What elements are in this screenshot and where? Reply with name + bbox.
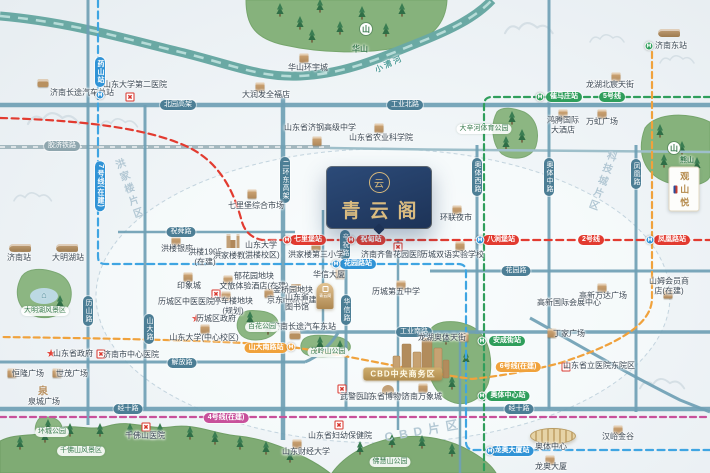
poi-parking-block: 停车楼地块 (规划) [213, 296, 253, 315]
building-icon-mixc [419, 384, 428, 393]
building-icon-qilibao-market [248, 190, 257, 199]
poi-aoti-center: 奥体中心 [535, 442, 567, 452]
poi-sdu-honglou-campus: 山东大学 (洪楼校区) [242, 240, 279, 259]
station-shanda-south-pill: 山大南路站 [245, 343, 288, 353]
poi-licheng-bilingual-school: 历城双语实验学校 [420, 250, 484, 260]
hospital-cross-icon-sdu2 [126, 93, 135, 102]
station-cuimazhuang-icon: M [536, 93, 545, 102]
road-shanda: 山大路 [144, 314, 154, 344]
poi-longao-building: 龙奥大厦 [535, 462, 567, 472]
park-qianfoshan-scenic: 千佛山风景区 [57, 446, 105, 456]
station-anchengjie-pill: 安成街站 [489, 336, 525, 346]
station-zhudian-icon: M [347, 236, 356, 245]
station-anchengjie-icon: M [478, 337, 487, 346]
poi-provincial-government: 山东省政府 [53, 349, 93, 359]
road-lishan: 历山路 [83, 296, 93, 326]
project-name: 青云阁 [332, 196, 425, 223]
poi-huaxin-building: 华信大厦 [313, 270, 345, 280]
station-aoti-center-pill: 奥体中心站 [487, 391, 530, 401]
brand-seal-icon [673, 185, 677, 193]
project-building: 青云阁 [317, 283, 334, 309]
park-huancheng: 环城公园 [35, 427, 69, 437]
poi-jigang-high-school: 山东省济钢高级中学 [284, 123, 356, 133]
bus-east-icon [290, 331, 301, 339]
building-icon-huanyu [300, 54, 309, 63]
poi-jinan-east-station: 济南东站 [655, 41, 687, 51]
project-emblem-glyph: 云 [374, 175, 384, 190]
road-jingshi-west: 经十路 [114, 404, 143, 414]
station-huayuanlu-pill: 花园路站 [340, 259, 376, 269]
poi-provincial-hospital-east: 山东省立医院东院区 [563, 361, 635, 371]
line5-pill: 5号线 [599, 92, 625, 102]
road-aoti-west: 奥体西路 [472, 158, 482, 196]
poi-hanyu-jingu: 汉峪金谷 [602, 432, 634, 442]
road-jiefang: 解放路 [168, 358, 197, 368]
line7-pill: 7号线(在建) [95, 161, 105, 211]
poi-caijing-university: 山东财经大学 [282, 447, 330, 457]
road-zhushun: 祝舜路 [167, 227, 196, 237]
line4-pill: 4号线(在建) [204, 413, 249, 423]
park-daminghu-scenic: 大明湖风景区 [21, 306, 69, 316]
project-badge: 云 青云阁 [326, 166, 432, 229]
mountain-badge-icon-huashan: 山 [359, 22, 373, 36]
poi-hongjialou-3rd-primary: 洪家楼第三小学 [288, 250, 344, 260]
poi-yinxiang-city: 印象城 [177, 281, 201, 291]
poi-coach-east-station: 济南长途汽车东站 [272, 322, 336, 332]
poi-licheng-5th-school: 历城第五中学 [372, 287, 420, 297]
poi-provincial-library: 山东省 图书馆 [285, 292, 309, 311]
station-qilibao-pill: 七里堡站 [290, 235, 326, 245]
road-jiaoji-railway: 胶济铁路 [44, 141, 80, 151]
building-icon-agri [375, 124, 384, 133]
station-jinan-east-icon: M [645, 42, 654, 51]
road-gongye-north: 工业北路 [387, 100, 423, 110]
poi-wanhong-plaza: 万虹广场 [586, 117, 618, 127]
road-fenghuang: 凤凰路 [631, 159, 641, 189]
project-building-logo-icon [322, 286, 328, 292]
poi-jinan-mixc: 济南万象城 [402, 392, 442, 402]
building-icon-bilingual [456, 242, 465, 251]
road-beiyuan-elevated: 北园高架 [160, 100, 196, 110]
plaque-guanshanyue: 观山悦 [668, 167, 699, 212]
station-longao-bldg-pill: 龙奥大厦站 [491, 446, 534, 456]
hospital-cross-icon-fuyou [335, 421, 344, 430]
poi-longhu-beichen: 龙湖北宸天街 [586, 80, 634, 90]
pavilion-icon-daminghu: ⌂ [41, 290, 46, 300]
building-icon-jigang-school [313, 137, 322, 146]
poi-sams-club: 山姆会员商店(在建) [649, 276, 690, 295]
train-icon-jinan [9, 244, 31, 252]
poi-qilibao-market: 七里堡综合市场 [228, 201, 284, 211]
poi-sdu-second-hospital: 山东大学第二医院 [103, 80, 167, 90]
poi-quancheng-square: 泉城广场 [28, 397, 60, 407]
station-qilibao-icon: M [283, 236, 292, 245]
poi-hanglung-plaza: 恒隆广场 [12, 369, 44, 379]
poi-jinan-station: 济南站 [7, 253, 31, 263]
building-icon-yinxiang [184, 273, 193, 282]
line2-pill: 2号线 [578, 235, 604, 245]
park-daxinhe-sports: 大辛河体育公园 [457, 124, 512, 134]
spring-sculpture-icon: 泉 [38, 383, 48, 398]
poi-longhu-aoti-tianjie: 龙湖奥体天街 [418, 333, 466, 343]
location-map-canvas: 云 青云阁 洪家楼片区科技城片区CBD片区北园高架工业北路胶济铁路祝舜路二环东高… [0, 0, 710, 473]
station-zhudian-pill: 祝甸站 [357, 235, 386, 245]
poi-daminghu-station: 大明湖站 [52, 253, 84, 263]
park-baihua: 百花公园 [245, 322, 279, 332]
church-icon [227, 234, 240, 248]
poi-agri-academy: 山东省农业科学院 [349, 133, 413, 143]
poi-shimao-plaza: 世茂广场 [56, 369, 88, 379]
poi-central-hospital: 济南市中心医院 [103, 350, 159, 360]
road-aoti-middle: 奥体中路 [544, 158, 554, 196]
station-aoti-center-icon: M [478, 392, 487, 401]
station-bajianbao-icon: M [476, 236, 485, 245]
bus-icon [38, 79, 49, 87]
station-longao-bldg-icon: M [486, 447, 495, 456]
poi-hongteng-hotel: 鸿腾国际 大酒店 [547, 115, 579, 134]
poi-huashan-huanyu-city: 华山环宇城 [288, 63, 328, 73]
train-icon-jinan-east [658, 29, 680, 37]
station-huayuanlu-icon: M [332, 260, 341, 269]
park-fohuishan: 佛慧山公园 [370, 457, 411, 467]
station-fenghuanglu-icon: M [646, 236, 655, 245]
poi-sdu-central-campus: 山东大学(中心校区) [169, 333, 238, 343]
station-shanda-south-icon: M [287, 343, 296, 352]
building-icon-sdu-central [201, 325, 210, 334]
poi-huanlian-night-market: 环联夜市 [440, 213, 472, 223]
banner-cbd: CBD中央商务区 [363, 368, 442, 381]
hospital-cross-icon-qianfoshan [142, 423, 151, 432]
station-yaoshan-icon: M [96, 91, 105, 100]
label-huashan: 华山 [352, 44, 368, 55]
station-bajianbao-pill: 八涧堡站 [483, 235, 519, 245]
project-emblem-icon: 云 [369, 172, 390, 193]
poi-licheng-tcm-hospital: 历城区中医医院 [158, 297, 214, 307]
road-erhuan-east-elevated: 二环东高架 [280, 157, 290, 203]
road-huaxin: 华信路 [341, 295, 351, 325]
station-yaoshan-pill: 药山站 [95, 57, 105, 87]
poi-gaoxin-convention: 高新国际会展中心 [537, 298, 601, 308]
poi-qianfoshan-hospital: 千佛山医院 [125, 431, 165, 441]
road-huayuan: 花园路 [502, 266, 531, 276]
poi-dingjia-plaza: 丁家广场 [553, 329, 585, 339]
station-fenghuanglu-pill: 凤凰路站 [654, 235, 690, 245]
map-base-layer [0, 0, 710, 473]
station-cuimazhuang-pill: 催马庄站 [546, 92, 582, 102]
label-xiongshan: 熊山 [680, 155, 694, 165]
road-jingshi-east: 经十路 [505, 404, 534, 414]
poi-rt-mart-quanfu: 大润发全福店 [242, 90, 290, 100]
park-maolingshan: 茂岭山公园 [308, 347, 349, 357]
line6-pill: 6号线(在建) [496, 362, 541, 372]
mountain-badge-icon-xiongshan: 山 [667, 141, 681, 155]
poi-licheng-government: 历城区政府 [196, 314, 236, 324]
poi-fuyou-hospital: 山东省妇幼保健院 [308, 431, 372, 441]
train-icon-daminghu [56, 244, 78, 252]
